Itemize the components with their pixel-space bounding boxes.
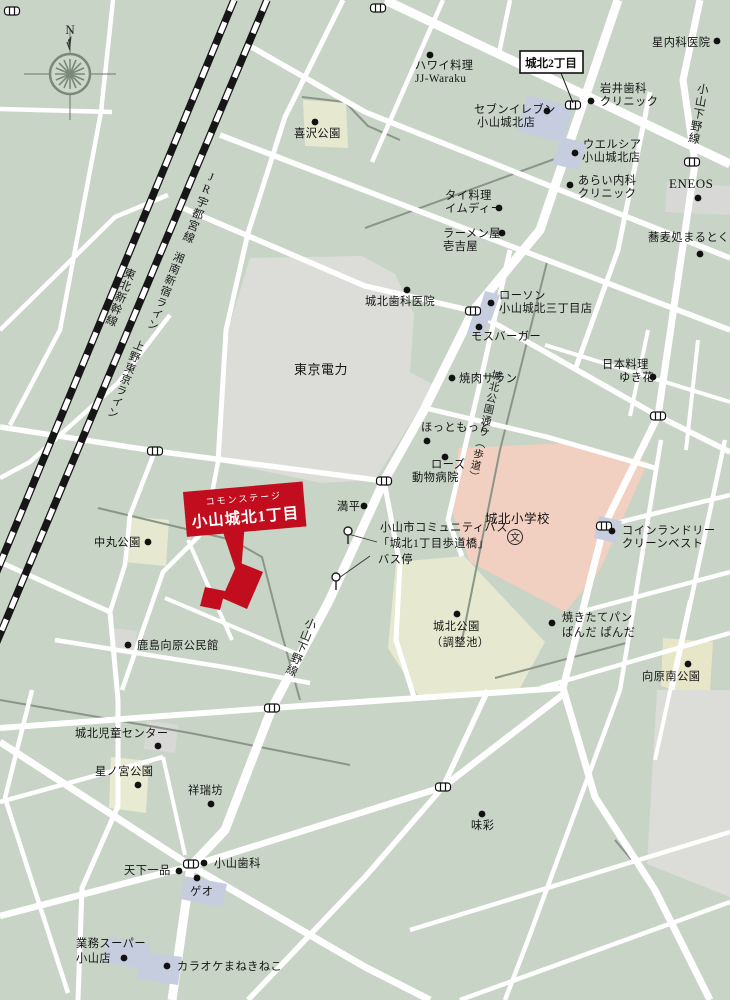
- nakamaru-park-label: 中丸公園: [94, 536, 141, 549]
- crossing-icon: [5, 7, 20, 15]
- karaoke-manekineko-label: カラオケまねきねこ: [177, 960, 282, 973]
- tenkaippin-dot: [176, 868, 183, 875]
- johoku-jido-center-label: 城北児童センター: [75, 726, 169, 740]
- geo-label: ゲオ: [190, 885, 213, 898]
- bottom-right-gray-area: [647, 690, 730, 897]
- crossing-icon: [651, 412, 666, 420]
- map-canvas: N ハワイ料理JJ-Waraku星内科医院岩井歯科クリニックセブンイレブン小山城…: [0, 0, 730, 1000]
- oyama-shika-label: 小山歯科: [214, 856, 261, 870]
- shozuibo-dot: [208, 801, 215, 808]
- rose-animal-hospital-label: 動物病院: [412, 470, 459, 484]
- yakiniku-saran-dot: [449, 375, 456, 382]
- mos-burger-dot: [476, 324, 483, 331]
- seven-eleven-label: 小山城北店: [477, 115, 535, 129]
- hoshi-naika-iin-dot: [714, 38, 721, 45]
- crossing-icon: [466, 307, 481, 315]
- welcia-dot: [572, 150, 579, 157]
- ajisai-label: 味彩: [471, 819, 494, 832]
- johoku-park-label: （調整池）: [431, 635, 489, 649]
- crossing-body: [265, 704, 280, 712]
- thai-imdy-label: イムディー: [445, 201, 502, 215]
- welcia-label: ウエルシア: [583, 138, 641, 151]
- geo-dot: [194, 875, 201, 882]
- soba-marutoku-dot: [697, 251, 704, 258]
- community-bus-stop-label: 小山市コミュニティバス: [380, 520, 508, 534]
- crossing-body: [436, 783, 451, 791]
- crossing-icon: [265, 704, 280, 712]
- coin-laundry-cleanbest-label: コインランドリー: [622, 525, 716, 537]
- hoshi-naika-iin-label: 星内科医院: [652, 35, 710, 49]
- coin-laundry-cleanbest-label: クリーンベスト: [622, 537, 703, 550]
- eneos-dot: [695, 195, 702, 202]
- ajisai-dot: [479, 811, 486, 818]
- crossing-icon: [685, 158, 700, 166]
- crossing-icon: [597, 522, 612, 530]
- crossing-body: [371, 4, 386, 12]
- johoku-shika-iin-label: 城北歯科医院: [365, 294, 435, 308]
- kashima-mukaihara-kominkan-label: 鹿島向原公民館: [137, 638, 219, 652]
- manpei-label: 満平: [337, 500, 360, 513]
- eneos-label: ENEOS: [669, 176, 713, 191]
- location-map: N ハワイ料理JJ-Waraku星内科医院岩井歯科クリニックセブンイレブン小山城…: [0, 0, 730, 1000]
- community-bus-stop-label: 「城北1丁目歩道橋」: [378, 536, 489, 550]
- gyomu-super-oyama-label: 業務スーパー: [76, 936, 146, 950]
- lawson-oyama-johoku-3-label: ローソン: [499, 290, 546, 302]
- shozuibo-label: 祥瑞坊: [188, 783, 223, 797]
- kizawa-park-area: [303, 100, 348, 148]
- gyomu-super-oyama-dot: [121, 955, 128, 962]
- johoku-jido-center-dot: [155, 743, 162, 750]
- crossing-body: [377, 477, 392, 485]
- crossing-icon: [184, 860, 199, 868]
- crossing-body: [5, 7, 20, 15]
- johoku-2chome-text: 城北2丁目: [525, 56, 577, 70]
- hawaii-jj-waraku-label: JJ-Waraku: [415, 73, 466, 85]
- tokyo-denryoku-label: 東京電力: [294, 362, 348, 377]
- hawaii-jj-waraku-label: ハワイ料理: [415, 58, 473, 72]
- ramen-ichikichiya-label: ラーメン屋: [443, 227, 501, 240]
- crossing-body: [466, 307, 481, 315]
- nihon-ryori-yukihana-label: 日本料理: [602, 357, 649, 371]
- johoku-park-dot: [454, 611, 461, 618]
- lawson-oyama-johoku-3-dot: [488, 300, 495, 307]
- iwai-shika-clinic-label: 岩井歯科: [600, 81, 647, 95]
- welcia-label: 小山城北店: [582, 150, 640, 164]
- crossing-icon: [377, 477, 392, 485]
- crossing-body: [685, 158, 700, 166]
- crossing-body: [597, 522, 612, 530]
- hoshinomiya-park-label: 星ノ宮公園: [95, 764, 153, 778]
- tenkaippin-label: 天下一品: [124, 864, 171, 877]
- bus-stop-icon: [344, 527, 352, 535]
- bakery-panda-panda-label: 焼きたてパン: [562, 611, 633, 624]
- soba-marutoku-label: 蕎麦処まるとく: [648, 231, 729, 244]
- bakery-panda-panda-label: ぱんだ ぱんだ: [562, 626, 635, 639]
- iwai-shika-clinic-label: クリニック: [600, 95, 658, 108]
- johoku-park-label: 城北公園: [433, 620, 480, 633]
- kashima-mukaihara-kominkan-dot: [125, 642, 132, 649]
- nakamaru-park-dot: [145, 539, 152, 546]
- crossing-body: [184, 860, 199, 868]
- nihon-ryori-yukihana-label: ゆき花: [619, 371, 654, 384]
- ramen-ichikichiya-label: 壱吉屋: [443, 239, 478, 253]
- road: [0, 109, 112, 112]
- crossing-body: [148, 447, 163, 455]
- rose-animal-hospital-label: ローズ: [431, 457, 466, 471]
- hawaii-jj-waraku-dot: [427, 52, 434, 59]
- mukaihara-minami-park-label: 向原南公園: [642, 669, 700, 683]
- seven-eleven-label: セブンイレブン: [474, 102, 556, 116]
- bus-stop-icon: [332, 573, 340, 581]
- iwai-shika-clinic-dot: [588, 98, 595, 105]
- hotto-motto-dot: [424, 438, 431, 445]
- crossing-body: [651, 412, 666, 420]
- manpei-dot: [361, 503, 368, 510]
- arai-naika-clinic-dot: [567, 182, 574, 189]
- crossing-icon: [436, 783, 451, 791]
- bakery-panda-panda-dot: [549, 620, 556, 627]
- mukaihara-minami-park-dot: [685, 661, 692, 668]
- gyomu-super-oyama-label: 小山店: [76, 951, 111, 965]
- oyama-shika-dot: [201, 860, 208, 867]
- karaoke-building: [137, 951, 182, 985]
- hoshinomiya-park-dot: [135, 782, 142, 789]
- crossing-icon: [371, 4, 386, 12]
- coin-laundry-cleanbest-dot: [609, 528, 616, 535]
- arai-naika-clinic-label: クリニック: [578, 187, 636, 200]
- thai-imdy-label: タイ料理: [445, 188, 492, 202]
- school-symbol-text: 文: [510, 531, 520, 544]
- johoku-shika-iin-dot: [404, 287, 411, 294]
- arai-naika-clinic-label: あらい内科: [578, 173, 636, 187]
- karaoke-manekineko-dot: [164, 963, 171, 970]
- kizawa-park-dot: [312, 119, 319, 126]
- community-bus-stop-label: バス停: [378, 552, 413, 566]
- kizawa-park-label: 喜沢公園: [294, 126, 341, 140]
- compass-n-label: N: [65, 22, 75, 37]
- lawson-oyama-johoku-3-label: 小山城北三丁目店: [499, 301, 593, 315]
- mos-burger-label: モスバーガー: [471, 330, 541, 343]
- crossing-icon: [148, 447, 163, 455]
